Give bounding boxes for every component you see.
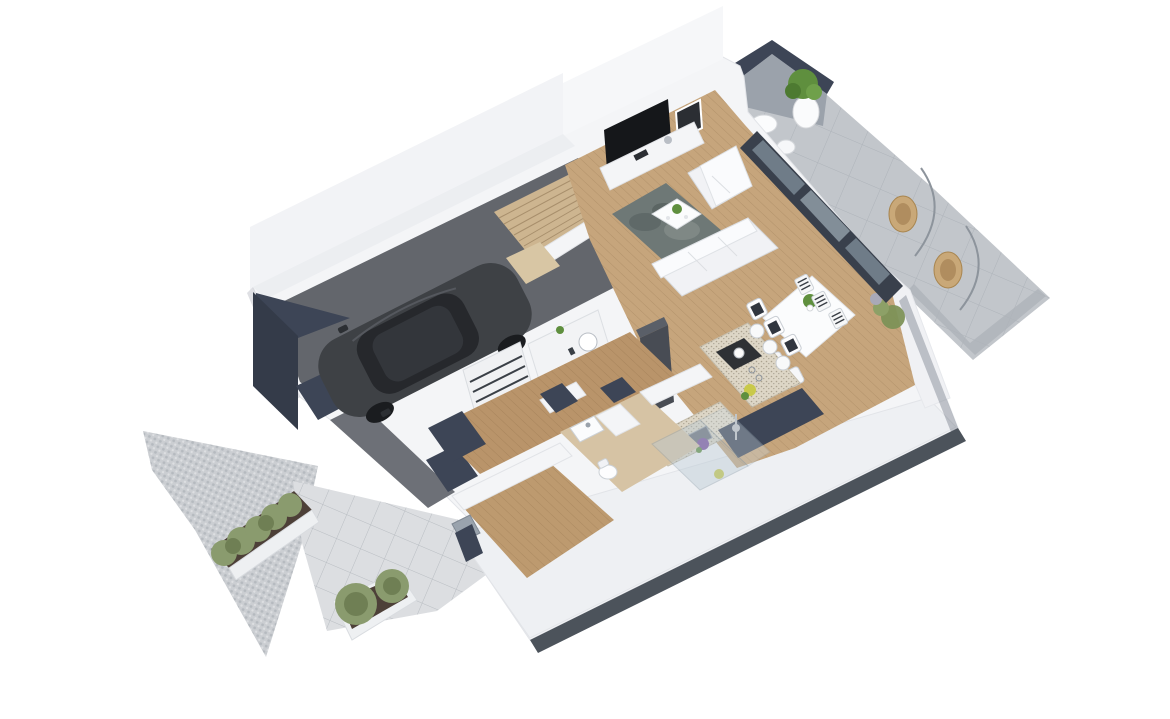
floorplan-render	[0, 0, 1170, 719]
shower-head	[732, 424, 740, 432]
shrub-core	[383, 577, 401, 595]
floorplan-svg	[0, 0, 1170, 719]
shrub-core	[344, 592, 368, 616]
decor-vase	[664, 136, 672, 144]
kettle	[734, 348, 744, 358]
